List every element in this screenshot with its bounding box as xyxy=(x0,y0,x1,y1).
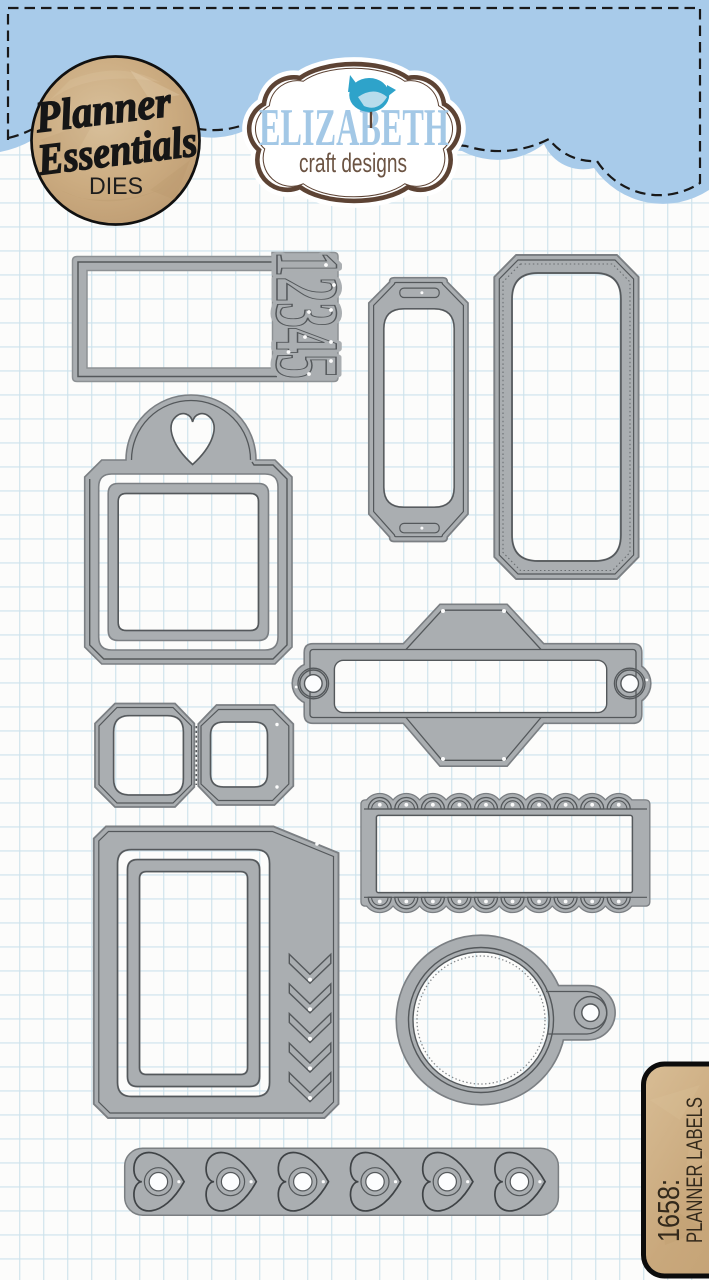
svg-text:PLANNER LABELS: PLANNER LABELS xyxy=(682,1097,707,1243)
svg-text:1658:: 1658: xyxy=(651,1179,686,1242)
svg-text:craft designs: craft designs xyxy=(299,148,407,178)
svg-text:DIES: DIES xyxy=(89,173,143,200)
svg-text:12345: 12345 xyxy=(257,251,356,379)
